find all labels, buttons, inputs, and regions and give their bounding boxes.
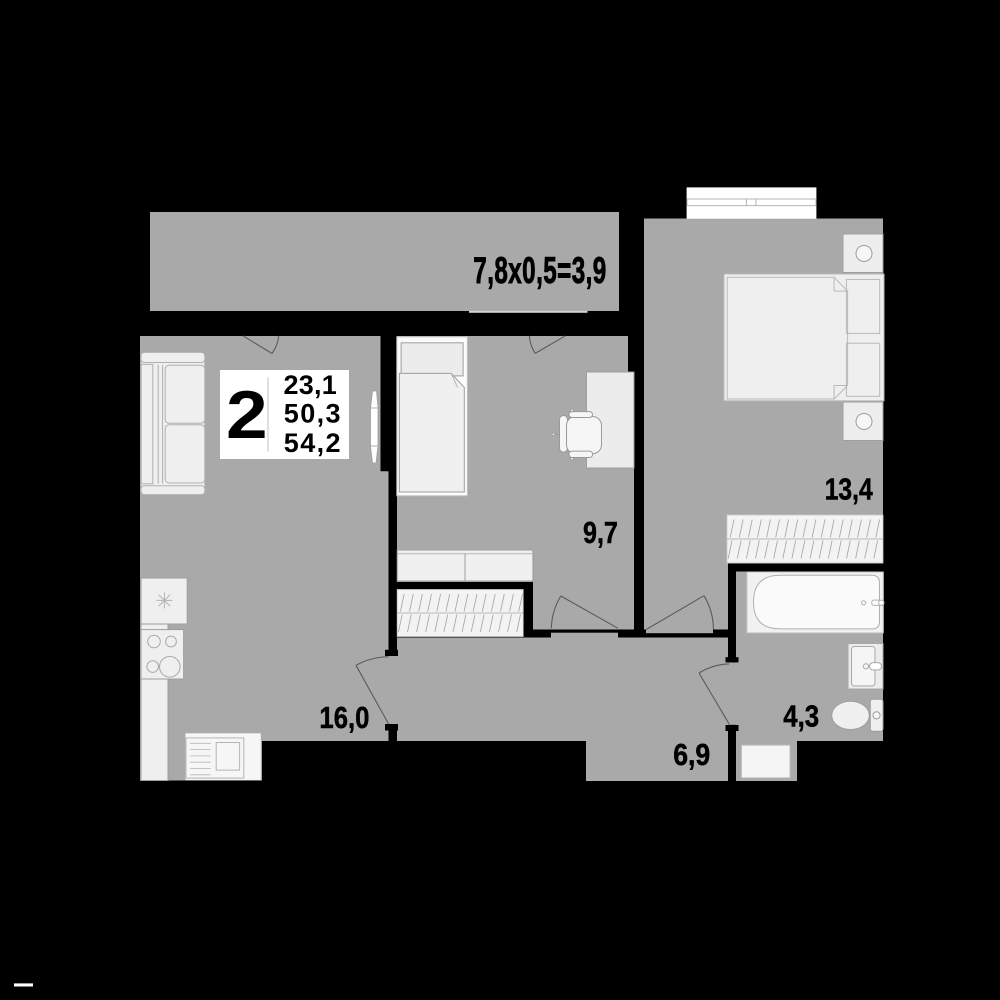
svg-text:50,3: 50,3	[284, 399, 341, 429]
svg-text:2: 2	[226, 377, 268, 453]
svg-text:54,2: 54,2	[284, 428, 341, 458]
svg-text:7,8x0,5=3,9: 7,8x0,5=3,9	[473, 250, 606, 291]
svg-text:6,9: 6,9	[673, 738, 710, 772]
svg-text:13,4: 13,4	[825, 472, 873, 506]
svg-text:23,1: 23,1	[284, 370, 337, 400]
svg-text:16,0: 16,0	[319, 701, 369, 736]
svg-text:9,7: 9,7	[583, 514, 618, 549]
svg-text:4,3: 4,3	[783, 699, 819, 734]
